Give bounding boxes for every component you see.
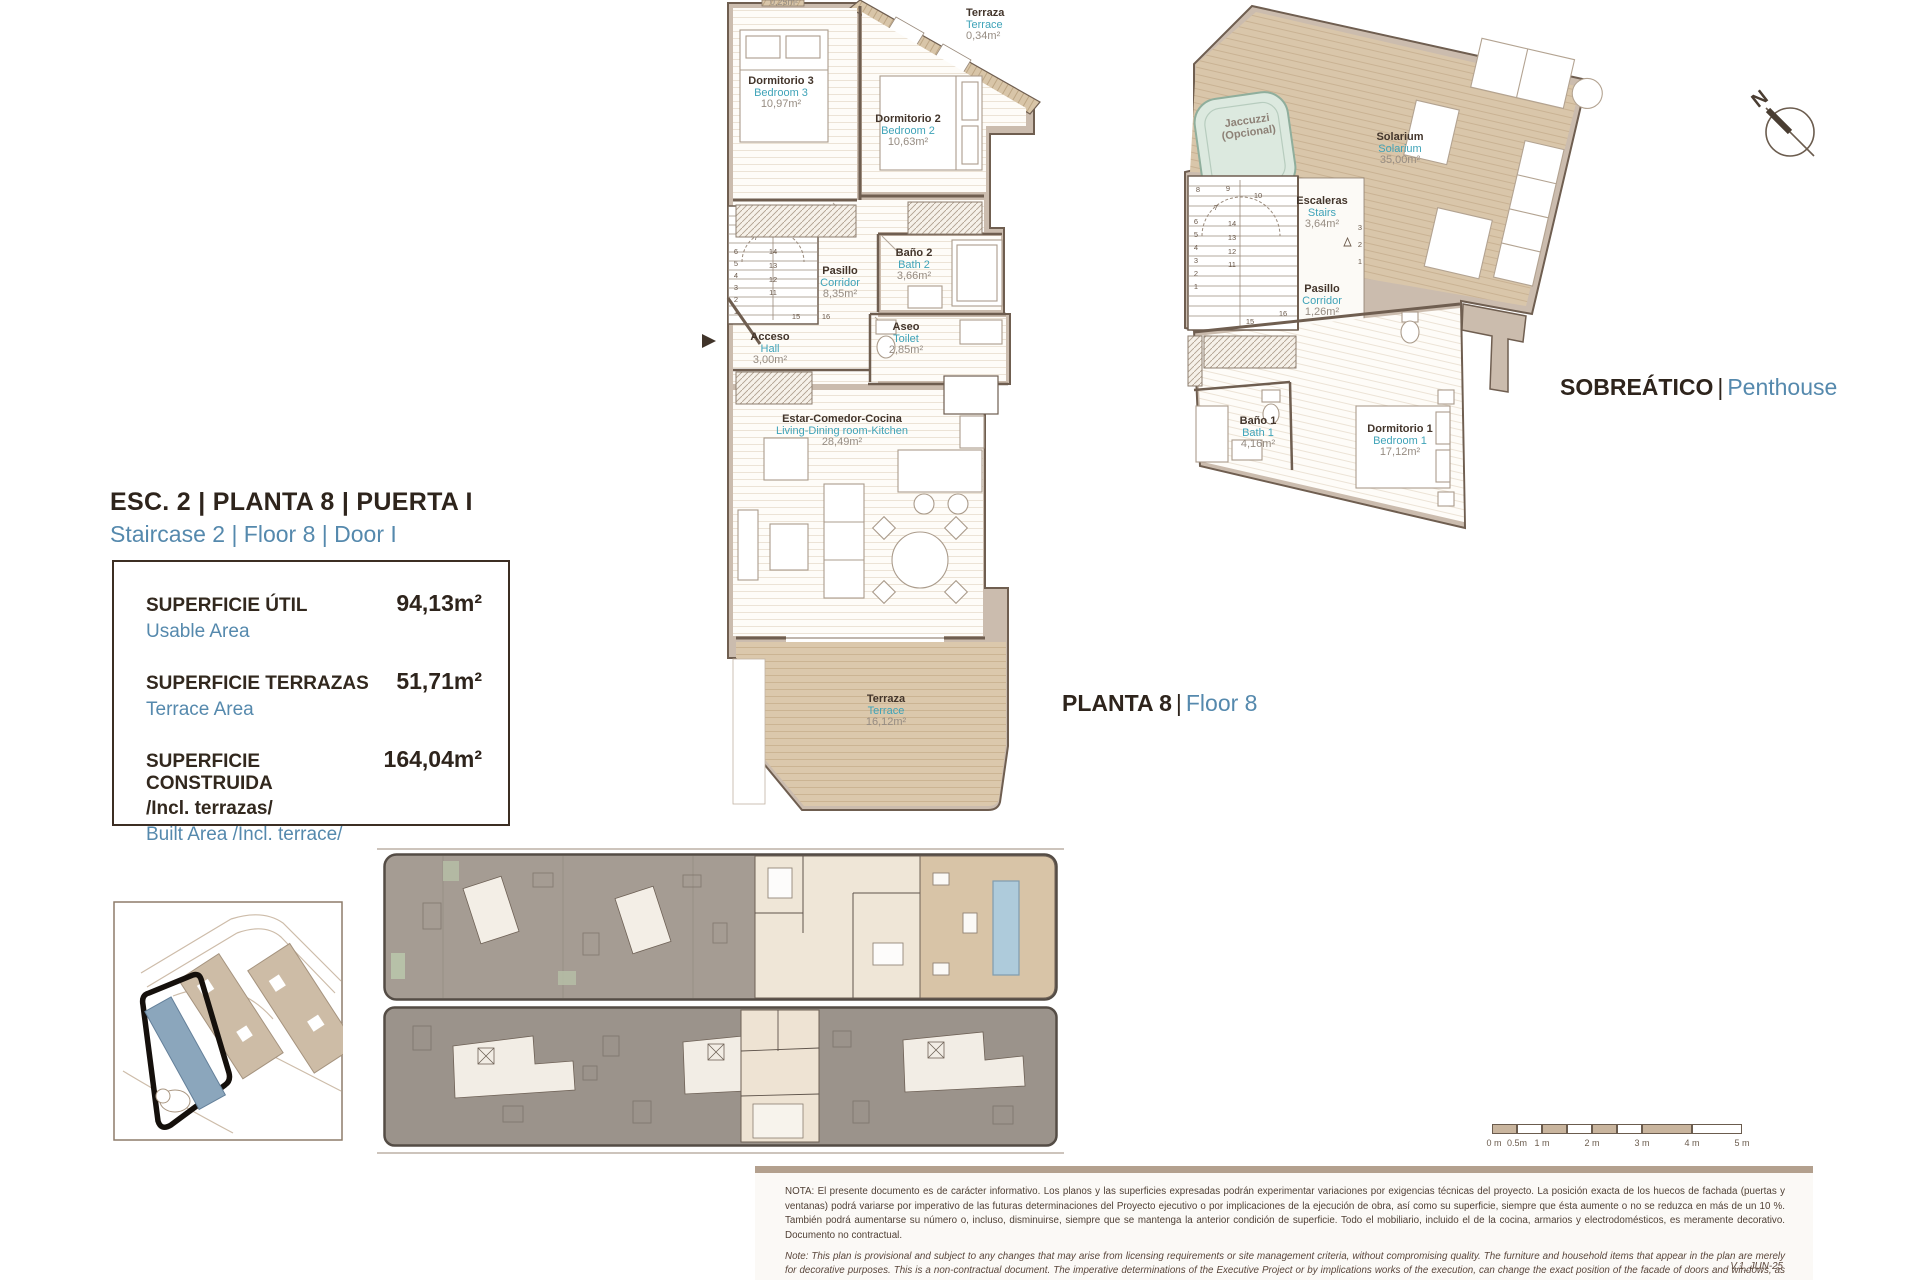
room-label-toilet: Aseo Toilet 2,85m² — [889, 322, 923, 357]
summary-value: 164,04m² — [384, 746, 482, 773]
building-strip-plans — [377, 847, 1064, 1155]
strip-penthouse — [385, 1008, 1057, 1146]
stair-number: 5 — [734, 259, 738, 268]
scale-bar: 0 m 0.5m 1 m 2 m 3 m 4 m 5 m — [1492, 1124, 1752, 1154]
stair-number: 8 — [1196, 185, 1200, 194]
room-label-corridor: Pasillo Corridor 8,35m² — [820, 266, 860, 301]
summary-label-en: Usable Area — [146, 621, 482, 643]
summary-value: 94,13m² — [396, 590, 482, 617]
room-label-terraza-tiny: 0,25m² — [770, 0, 798, 7]
room-label-bath1: Baño 1 Bath 1 4,16m² — [1240, 416, 1277, 451]
floor-tag-en: Floor 8 — [1186, 690, 1258, 716]
stair-number: 3 — [1194, 256, 1198, 265]
stair-number: 4 — [734, 271, 738, 280]
summary-label-2: /Incl. terrazas/ — [146, 798, 482, 820]
stair-number: 16 — [822, 312, 830, 321]
penthouse-floorplan: 8 9 10 7 6 5 4 3 2 1 14 13 12 11 15 16 3… — [1170, 0, 1630, 570]
note-text-es: NOTA: El presente documento es de caráct… — [785, 1185, 1785, 1244]
stair-number: 13 — [769, 261, 777, 270]
room-label-bedroom2: Dormitorio 2 Bedroom 2 10,63m² — [875, 114, 940, 149]
stair-number: 11 — [1228, 260, 1236, 269]
stair-number: 14 — [769, 247, 777, 256]
page-subtitle: Staircase 2 | Floor 8 | Door I — [110, 521, 397, 548]
penthouse-tag-es: SOBREÁTICO — [1560, 374, 1713, 400]
stair-number: 14 — [1228, 219, 1236, 228]
penthouse-tag: SOBREÁTICO|Penthouse — [1560, 374, 1837, 401]
stair-number: 11 — [769, 288, 777, 297]
summary-label: SUPERFICIE TERRAZAS — [146, 673, 369, 695]
stair-number: 13 — [1228, 233, 1236, 242]
stair-number: 10 — [1254, 191, 1262, 200]
north-arrow-icon: N — [1735, 70, 1845, 180]
stair-number: 1 — [1194, 282, 1198, 291]
stair-number: 5 — [1194, 230, 1198, 239]
scale-label: 3 m — [1634, 1138, 1649, 1148]
stair-number: 6 — [734, 247, 738, 256]
note-text-en: Note: This plan is provisional and subje… — [785, 1250, 1785, 1280]
room-label-stairs: Escaleras Stairs 3,64m² — [1296, 196, 1347, 231]
stair-number: 2 — [1194, 269, 1198, 278]
strip-pool — [993, 881, 1019, 975]
floor-tag: PLANTA 8|Floor 8 — [1062, 690, 1257, 717]
room-label-bath2: Baño 2 Bath 2 3,66m² — [896, 248, 933, 283]
stair-number: 15 — [792, 312, 800, 321]
stair-number: 16 — [1279, 309, 1287, 318]
summary-row-usable: SUPERFICIE ÚTIL 94,13m² Usable Area — [146, 590, 482, 643]
version-label: V.1_JUN-25 — [1730, 1261, 1783, 1272]
room-label-bedroom1: Dormitorio 1 Bedroom 1 17,12m² — [1367, 424, 1432, 459]
room-label-hall: Acceso Hall 3,00m² — [750, 332, 789, 367]
stair-number: 9 — [1226, 184, 1230, 193]
room-label-corridor-penthouse: Pasillo Corridor 1,26m² — [1302, 284, 1342, 319]
scale-label: 0.5m — [1507, 1138, 1527, 1148]
note-block: NOTA: El presente documento es de caráct… — [755, 1166, 1813, 1280]
stair-number: 2 — [1358, 240, 1362, 249]
floor-tag-es: PLANTA 8 — [1062, 690, 1172, 716]
plan-sheet: 8 9 10 7 6 5 4 3 2 1 14 13 12 11 15 16 — [0, 0, 1920, 1280]
scale-label: 2 m — [1584, 1138, 1599, 1148]
room-label-bedroom3: Dormitorio 3 Bedroom 3 10,97m² — [748, 76, 813, 111]
floor-tag-sep: | — [1172, 690, 1186, 716]
stair-number: 1 — [1358, 257, 1362, 266]
room-label-terrace: Terraza Terrace 16,12m² — [866, 694, 906, 729]
stair-number: 6 — [1194, 217, 1198, 226]
stair-number: 12 — [1228, 247, 1236, 256]
summary-value: 51,71m² — [396, 668, 482, 695]
stair-number: 3 — [734, 283, 738, 292]
stair-number: 12 — [769, 275, 777, 284]
summary-label-en: Built Area /Incl. terrace/ — [146, 824, 482, 846]
room-label-terraza-top: Terraza Terrace 0,34m² — [966, 8, 1004, 43]
summary-label-en: Terrace Area — [146, 699, 482, 721]
summary-label: SUPERFICIE ÚTIL — [146, 595, 308, 617]
stair-number: 2 — [734, 295, 738, 304]
strip-floor8 — [385, 855, 1057, 1000]
scale-label: 0 m — [1486, 1138, 1501, 1148]
scale-label: 1 m — [1534, 1138, 1549, 1148]
room-label-living: Estar-Comedor-Cocina Living-Dining room-… — [776, 414, 908, 449]
summary-label: SUPERFICIE CONSTRUIDA — [146, 751, 384, 795]
penthouse-tag-en: Penthouse — [1727, 374, 1837, 400]
scale-label: 5 m — [1734, 1138, 1749, 1148]
entrance-arrow-icon — [702, 334, 716, 348]
penthouse-tag-sep: | — [1713, 374, 1727, 400]
stair-number: 3 — [1358, 223, 1362, 232]
room-label-solarium: Solarium Solarium 35,00m² — [1376, 132, 1423, 167]
page-title: ESC. 2 | PLANTA 8 | PUERTA I — [110, 488, 473, 517]
stair-number: 4 — [1194, 243, 1198, 252]
north-letter: N — [1747, 86, 1772, 112]
summary-row-terrace: SUPERFICIE TERRAZAS 51,71m² Terrace Area — [146, 668, 482, 721]
scale-label: 4 m — [1684, 1138, 1699, 1148]
summary-row-built: SUPERFICIE CONSTRUIDA 164,04m² /Incl. te… — [146, 746, 482, 846]
site-key-plan — [113, 901, 343, 1141]
stair-number: 7 — [1214, 203, 1218, 212]
area-summary-box: SUPERFICIE ÚTIL 94,13m² Usable Area SUPE… — [112, 560, 510, 826]
